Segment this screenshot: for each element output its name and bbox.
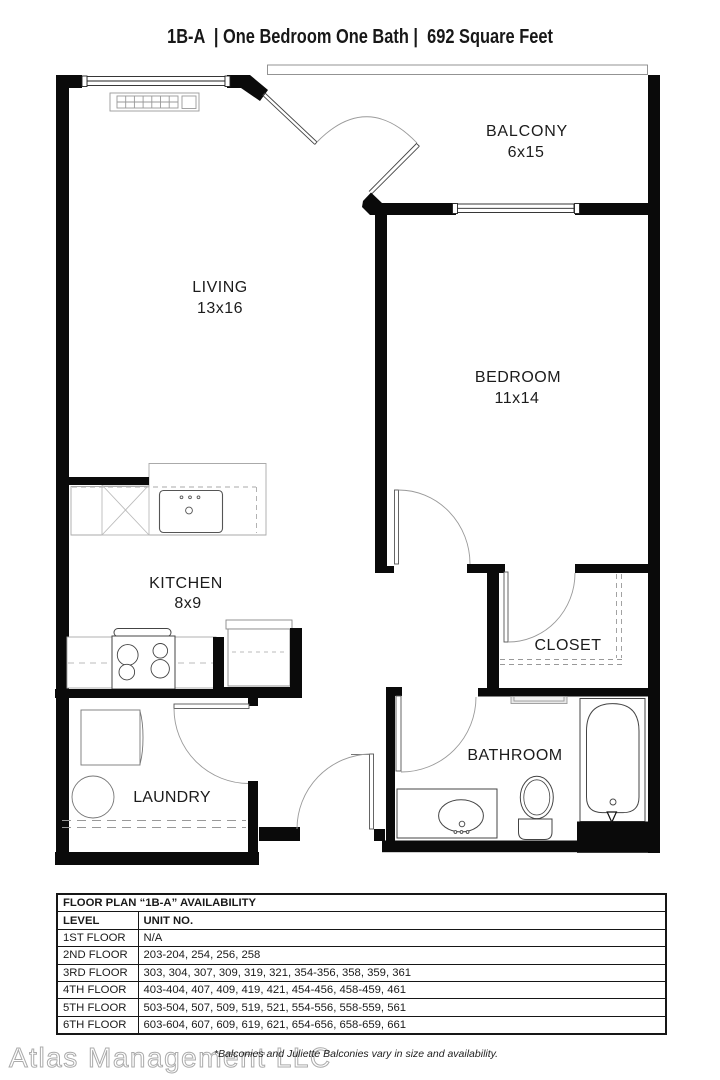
svg-text:BEDROOM: BEDROOM [475,369,561,386]
svg-text:11x14: 11x14 [495,390,540,407]
svg-text:8x9: 8x9 [174,595,201,612]
svg-text:CLOSET: CLOSET [534,637,601,654]
svg-text:BATHROOM: BATHROOM [467,747,562,764]
svg-text:LIVING: LIVING [192,279,247,296]
svg-text:KITCHEN: KITCHEN [149,575,223,592]
svg-text:LAUNDRY: LAUNDRY [133,789,211,806]
svg-text:13x16: 13x16 [197,300,243,317]
svg-text:BALCONY: BALCONY [486,123,568,140]
svg-text:6x15: 6x15 [508,144,545,161]
